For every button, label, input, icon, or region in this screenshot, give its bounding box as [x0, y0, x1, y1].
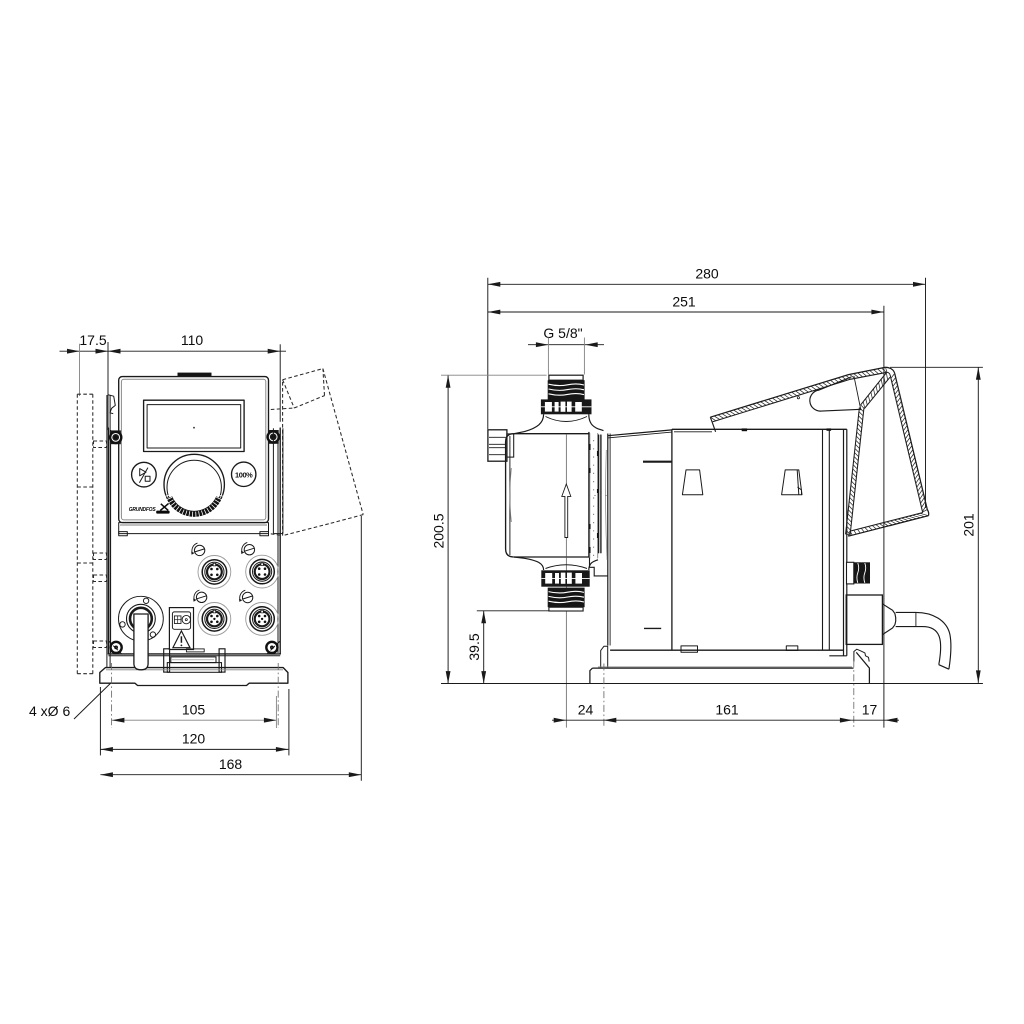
svg-text:G 5/8": G 5/8" [543, 325, 582, 341]
svg-text:GRUNDFOS: GRUNDFOS [129, 507, 157, 513]
svg-text:251: 251 [672, 293, 696, 309]
svg-text:24: 24 [578, 702, 594, 718]
svg-text:280: 280 [695, 266, 719, 282]
svg-text:17: 17 [862, 702, 878, 718]
svg-text:168: 168 [219, 756, 243, 772]
svg-text:105: 105 [182, 702, 206, 718]
svg-text:4 xØ 6: 4 xØ 6 [29, 703, 70, 719]
svg-text:39.5: 39.5 [466, 633, 482, 660]
svg-text:110: 110 [181, 332, 204, 348]
svg-text:100%: 100% [235, 470, 253, 479]
svg-text:17.5: 17.5 [79, 332, 106, 348]
svg-text:200.5: 200.5 [431, 513, 447, 548]
svg-text:161: 161 [715, 702, 739, 718]
svg-text:201: 201 [961, 513, 977, 537]
svg-text:120: 120 [182, 731, 206, 747]
